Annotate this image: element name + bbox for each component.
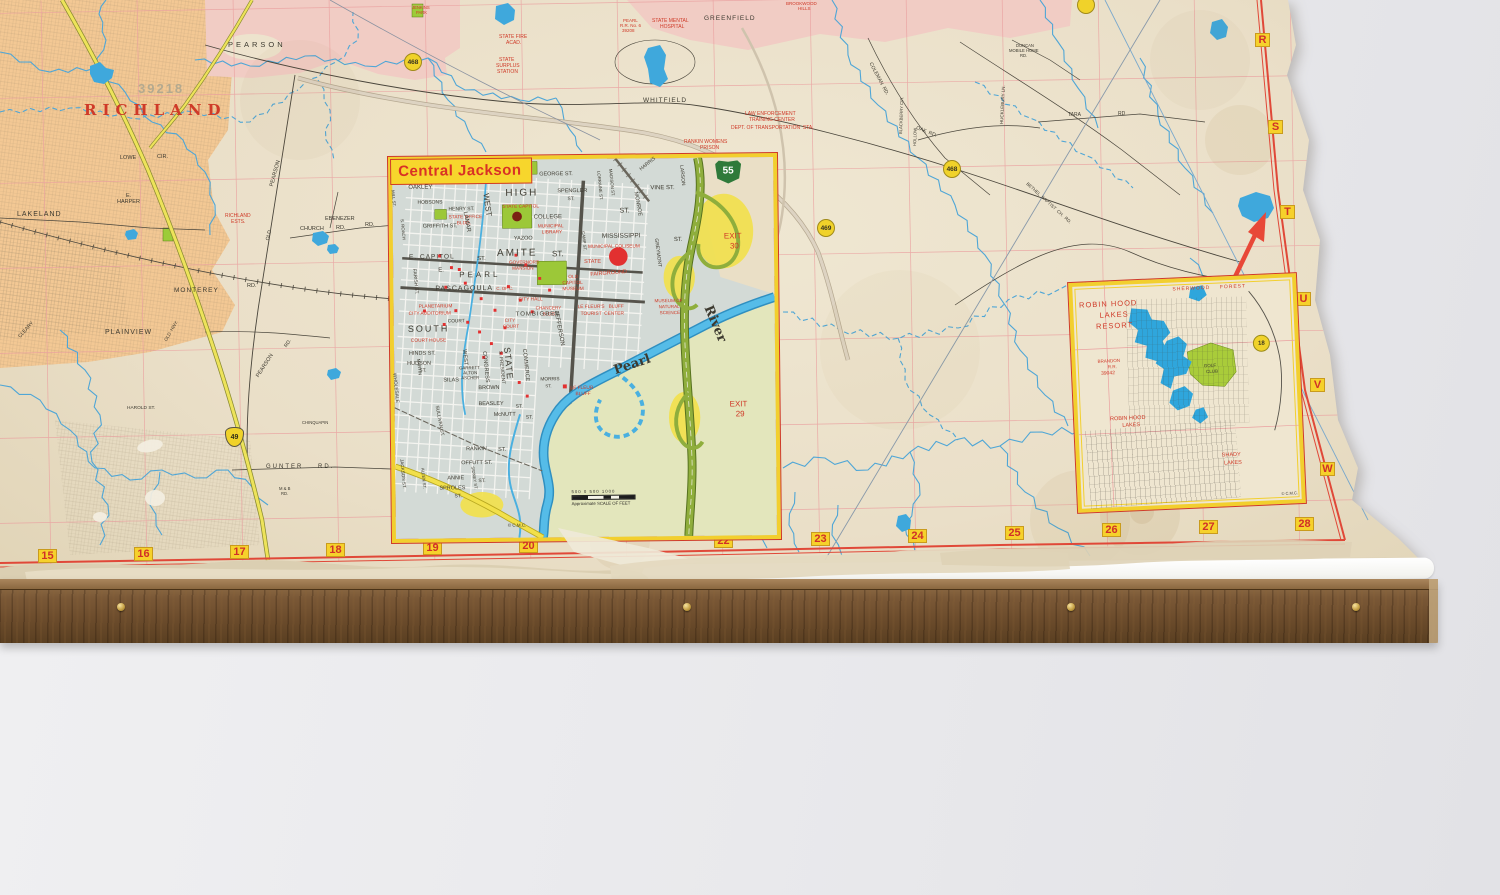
grid-number: 28 (1295, 517, 1314, 531)
map-label: MANSION (512, 267, 534, 272)
map-label: RD. (247, 284, 256, 290)
scale-bar-graphic (572, 494, 636, 500)
map-label: HINDS ST. (409, 352, 436, 358)
map-label: LAKELAND (17, 211, 62, 218)
map-label: SOUTH (408, 324, 450, 333)
map-label: LOWE (120, 156, 136, 162)
map-label: TARA (1068, 113, 1081, 118)
map-label: COURT HOUSE (411, 339, 446, 344)
map-label: OAKLEY (408, 185, 432, 191)
highway-18-number: 18 (1258, 340, 1265, 346)
map-label: MARTIN (416, 359, 422, 376)
map-rail (0, 579, 1438, 643)
map-label: HOLLOW (913, 128, 918, 146)
map-label: 30 (730, 242, 739, 250)
map-label: ST. (545, 384, 551, 388)
map-label: 39218 (138, 82, 184, 95)
central-jackson-inset: Central Jackson 55 500 0 500 1000 Approx… (388, 153, 781, 543)
map-label: SILAS (443, 378, 459, 384)
grid-number: 19 (423, 541, 442, 555)
map-label: ST. (516, 405, 523, 410)
street-grid-texture (1126, 296, 1249, 425)
grid-letter: U (1296, 292, 1311, 306)
map-label: COLLEGE (534, 214, 562, 220)
map-label: COURT (448, 320, 465, 325)
map-label: CAMP ST. (580, 231, 586, 251)
grid-letter: R (1255, 33, 1270, 47)
highway-shield: 468 (943, 160, 961, 178)
map-label: ST. (674, 237, 683, 243)
grid-number: 24 (908, 529, 927, 543)
street-grid-texture (1085, 419, 1241, 509)
map-label: PRISON (700, 146, 719, 151)
map-label: E. CAPITOL (409, 254, 455, 261)
map-label: BEASLEY (479, 402, 504, 408)
map-label: PARK (416, 11, 427, 15)
map-label: STATE CAPITOL (503, 205, 540, 210)
map-label: 39042 (1101, 371, 1115, 377)
map-label: RESORT (1096, 321, 1133, 330)
map-label: S. ROACH (399, 219, 405, 240)
map-label: SPROLES (439, 486, 465, 492)
map-label: ACAD. (506, 41, 521, 46)
copyright: © C.M.C. (1281, 491, 1298, 496)
photo-scene: RICHLAND39218PEARSONLOWECIR.E.HARPERLAKE… (0, 0, 1500, 895)
map-label: MONTEREY (174, 288, 219, 295)
map-label: 39208 (622, 29, 635, 34)
map-label: LARSON (678, 165, 685, 186)
map-label: PLAINVIEW (105, 329, 152, 336)
grid-letter: T (1280, 205, 1295, 219)
map-label: ST. (455, 494, 462, 499)
map-label: RICHLAND (84, 103, 227, 118)
brass-tack (683, 603, 691, 611)
map-label: CITY (505, 319, 516, 324)
map-label: BLUFF (575, 393, 590, 398)
map-label: RANKIN (466, 447, 487, 453)
grid-number: 27 (1199, 520, 1218, 534)
map-label: ST. (567, 197, 574, 202)
grid-number: 25 (1005, 526, 1024, 540)
map-label: ASCHER (461, 376, 479, 380)
scale-bar: 500 0 500 1000 Approximate SCALE OF FEET (571, 488, 661, 506)
robin-hood-inset: 18 © C.M.C. SHERWOOD FORESTROBIN HOODLAK… (1068, 273, 1306, 513)
map-label: YAZOO (514, 237, 533, 243)
scale-ticks: 500 0 500 1000 (571, 488, 661, 494)
map-label: GRIFFITH ST. (423, 224, 458, 230)
map-label: LAKES (1122, 423, 1140, 429)
brass-tack (1352, 603, 1360, 611)
map-label: ST. (526, 416, 533, 421)
scale-caption: Approximate SCALE OF FEET (572, 500, 662, 506)
grid-number: 15 (38, 549, 57, 563)
interstate-55-number: 55 (723, 165, 734, 176)
map-label: PASCAGOULA (435, 285, 493, 293)
map-label: MILL ST. (390, 190, 396, 207)
brass-tack (117, 603, 125, 611)
grid-number: 18 (326, 543, 345, 557)
map-label: WEST (481, 193, 492, 217)
map-label: R.R. (1108, 365, 1117, 370)
map-label: LIBRARY (542, 231, 563, 236)
map-label: RD. (365, 223, 374, 229)
map-label: COURT (503, 325, 519, 330)
grid-number: 16 (134, 547, 153, 561)
map-label: McNUTT (494, 413, 516, 419)
map-label: EBENEZER (325, 217, 355, 223)
map-label: MISSISSIPPI (602, 233, 641, 240)
map-label: TOURIST CENTER (581, 313, 624, 318)
map-label: ANNIE (447, 476, 464, 482)
map-sheet: RICHLAND39218PEARSONLOWECIR.E.HARPERLAKE… (0, 0, 1430, 600)
highway-shield: 468 (404, 53, 422, 71)
map-label: SHADY (1222, 453, 1241, 459)
map-label: ST. (620, 208, 630, 215)
map-label: SPENGLER (557, 189, 587, 195)
grid-number: 17 (230, 545, 249, 559)
map-label: LE FLEUR'S BLUFF (578, 306, 624, 311)
map-label: CHURCH (300, 227, 324, 233)
map-label: HIGH (505, 188, 538, 198)
map-label: EXIT (724, 232, 742, 240)
map-label: CLUB (1206, 370, 1218, 375)
map-label: CIR. (157, 155, 168, 161)
map-label: TRAINING CENTER (749, 118, 795, 123)
map-label: LAKES (1099, 310, 1128, 319)
map-label: HAROLD ST. (127, 407, 155, 412)
grid-letter: W (1320, 462, 1335, 476)
map-label: STATION (497, 70, 518, 75)
map-label: C. OF C. (496, 287, 513, 291)
map-label: GUNTER RD. (266, 464, 334, 470)
map-label: WEST (461, 349, 468, 365)
map-label: PLANETARIUM (419, 305, 453, 310)
map-label: PEARL (459, 271, 500, 279)
map-label: E. (438, 267, 444, 273)
map-label: ST. (478, 479, 485, 484)
map-label: RD (1118, 112, 1125, 117)
map-label: VINE ST. (650, 185, 674, 191)
map-label: STATE (584, 260, 601, 266)
map-label: RD. (281, 492, 288, 496)
map-label: GREENFIELD (704, 16, 756, 23)
map-label: ALLEN ST. (420, 468, 426, 489)
grid-letter: S (1268, 120, 1283, 134)
map-label: GEORGE ST. (539, 172, 573, 178)
map-label: ST. (552, 250, 564, 258)
map-label: MUSEUM (562, 288, 583, 293)
map-label: 29 (736, 410, 745, 418)
map-label: RD. (1020, 54, 1027, 58)
map-label: HILLS (798, 7, 811, 12)
map-label: TOMBIGBEE (516, 311, 561, 317)
map-label: RD. (336, 226, 345, 232)
map-label: DEPT. OF TRANSPORTATION STA. (731, 126, 814, 131)
map-label: CITY AUDITORIUM (409, 312, 451, 317)
map-label: LAKES (1224, 461, 1242, 467)
map-label: EXIT (730, 400, 748, 408)
inset-title: Central Jackson (390, 158, 533, 185)
map-label: HOBSONS (417, 200, 442, 205)
map-label: SCIENCE (660, 311, 680, 316)
grid-number: 26 (1102, 523, 1121, 537)
copyright: © C.M.C. (508, 524, 527, 529)
map-label: CHINQUAPIN (302, 421, 328, 425)
map-label: HOSPITAL (660, 25, 684, 30)
map-label: OFFUTT ST. (461, 461, 492, 467)
map-label: BROWN (478, 386, 499, 392)
map-label: STATE (502, 347, 514, 380)
map-label: ESTS. (231, 220, 245, 225)
map-sheet-wrap: RICHLAND39218PEARSONLOWECIR.E.HARPERLAKE… (0, 0, 1430, 600)
map-label: MUNICIPAL COLISEUM (588, 245, 640, 250)
highway-shield: 469 (817, 219, 835, 237)
grid-letter: V (1310, 378, 1325, 392)
brass-tack (1067, 603, 1075, 611)
map-label: ST. (498, 448, 506, 454)
map-label: HARPER (117, 200, 140, 206)
map-label: CITY HALL (518, 298, 542, 303)
map-label: ST. (477, 256, 486, 262)
grid-number: 23 (811, 532, 830, 546)
map-label: WHITFIELD (643, 98, 687, 105)
map-label: AMITE (497, 248, 538, 258)
map-label: PEARSON (228, 41, 286, 49)
